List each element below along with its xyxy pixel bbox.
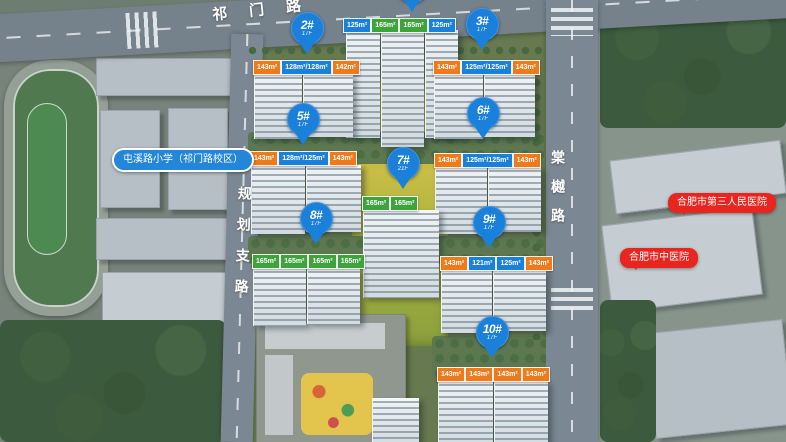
unit-area-tag: 125m²/125m² [461, 60, 511, 75]
building-floors: 17F [311, 221, 321, 228]
unit-tags-building-8: 165m² 165m² 165m² 165m² [252, 254, 365, 269]
trees [0, 320, 226, 442]
pin-pointer-icon [308, 232, 324, 252]
building-number: 6# [477, 104, 489, 116]
unit-area-tag: 143m² [440, 256, 468, 271]
pin-pointer-icon [481, 236, 497, 256]
unit-area-tag: 143m² [250, 151, 278, 166]
unit-area-tag: 165m² [390, 196, 418, 211]
lane-marking [571, 0, 573, 442]
residential-tower [363, 210, 439, 298]
residential-tower [372, 398, 419, 442]
building-floors: 21F [398, 166, 408, 173]
building-number: 9# [483, 213, 495, 225]
pin-pointer-icon [484, 346, 500, 366]
crosswalk [551, 8, 593, 36]
unit-area-tag: 165m² [252, 254, 280, 269]
building-floors: 17F [487, 335, 497, 342]
unit-tags-building-2: 143m² 128m²/128m² 142m² [253, 60, 360, 75]
building-pin-5: 5# 17F [285, 103, 321, 153]
building-floors: 17F [477, 27, 487, 34]
building-pin-2: 2# 17F [289, 12, 325, 62]
pin-pointer-icon [475, 127, 491, 147]
unit-area-tag: 143m² [253, 60, 281, 75]
residential-tower [253, 268, 306, 326]
pin-head: 5# 17F [287, 103, 320, 136]
hospital-label-third-peoples: 合肥市第三人民医院 [668, 193, 776, 213]
unit-area-tag: 143m² [437, 367, 465, 382]
unit-area-tag: 165m² [280, 254, 308, 269]
stadium-track [4, 60, 108, 316]
unit-tags-building-1: 125m² 165m² 165m² 125m² [343, 18, 456, 33]
pin-pointer-icon [295, 133, 311, 153]
unit-tags-building-7: 165m² 165m² [362, 196, 418, 211]
building-floors: 17F [484, 225, 494, 232]
unit-area-tag: 143m² [525, 256, 553, 271]
building-number: 5# [297, 110, 309, 122]
residential-tower [494, 381, 548, 442]
school-building [96, 218, 230, 260]
kindergarten-wing [265, 355, 293, 435]
building-pin-8: 8# 17F [298, 202, 334, 252]
unit-area-tag: 125m² [343, 18, 371, 33]
pin-head: 6# 17F [467, 97, 500, 130]
road-name-tangyue: 棠樾路 [548, 150, 568, 237]
trees [600, 300, 656, 442]
unit-area-tag: 143m² [512, 60, 540, 75]
residential-tower [251, 165, 305, 234]
unit-area-tag: 142m² [332, 60, 360, 75]
unit-tags-building-6: 143m² 125m²/125m² 143m² [434, 153, 541, 168]
building-pin-6: 6# 17F [465, 97, 501, 147]
pin-pointer-icon [404, 0, 420, 20]
building-number: 2# [301, 19, 313, 31]
pin-head: 10# 17F [476, 316, 509, 349]
unit-area-tag: 143m² [513, 153, 541, 168]
unit-area-tag: 143m² [433, 60, 461, 75]
hospital-building [645, 319, 786, 439]
unit-area-tag: 165m² [399, 18, 427, 33]
unit-area-tag: 125m² [428, 18, 456, 33]
building-number: 8# [310, 209, 322, 221]
building-number: 3# [476, 15, 488, 27]
unit-tags-building-5: 143m² 128m²/125m² 143m² [250, 151, 357, 166]
pin-pointer-icon [395, 177, 411, 197]
building-floors: 17F [478, 116, 488, 123]
residential-tower [438, 381, 493, 442]
building-pin-7: 7# 21F [385, 147, 421, 197]
pin-head: 9# 17F [473, 206, 506, 239]
unit-area-tag: 165m² [371, 18, 399, 33]
crosswalk [551, 288, 593, 314]
unit-area-tag: 143m² [465, 367, 493, 382]
unit-area-tag: 143m² [493, 367, 521, 382]
school-building [96, 58, 234, 96]
building-pin-3: 3# 17F [464, 8, 500, 58]
pin-head: 2# 17F [291, 12, 324, 45]
kindergarten-playground [301, 373, 373, 435]
pin-head: 3# 17F [466, 8, 499, 41]
unit-tags-building-3: 143m² 125m²/125m² 143m² [433, 60, 540, 75]
building-number: 7# [397, 154, 409, 166]
school-label: 屯溪路小学（祁门路校区） [112, 148, 254, 172]
unit-area-tag: 143m² [434, 153, 462, 168]
unit-area-tag: 143m² [329, 151, 357, 166]
pin-head: 7# 21F [387, 147, 420, 180]
pin-pointer-icon [474, 38, 490, 58]
unit-tags-building-9: 143m² 121m² 125m² 143m² [440, 256, 553, 271]
building-floors: 17F [298, 122, 308, 129]
stadium-field [27, 103, 67, 255]
pin-pointer-icon [299, 42, 315, 62]
residential-tower [307, 268, 360, 324]
unit-area-tag: 165m² [337, 254, 365, 269]
unit-area-tag: 128m²/125m² [278, 151, 328, 166]
unit-area-tag: 143m² [522, 367, 550, 382]
building-pin-9: 9# 17F [471, 206, 507, 256]
hospital-label-tcm: 合肥市中医院 [620, 248, 698, 268]
building-pin-1 [394, 0, 430, 20]
unit-area-tag: 121m² [468, 256, 496, 271]
building-number: 10# [483, 323, 502, 335]
aerial-masterplan: 125m² 165m² 165m² 125m² 143m² 128m²/128m… [0, 0, 786, 442]
unit-area-tag: 125m²/125m² [462, 153, 512, 168]
building-pin-10: 10# 17F [474, 316, 510, 366]
unit-area-tag: 165m² [308, 254, 336, 269]
unit-tags-building-10: 143m² 143m² 143m² 143m² [437, 367, 550, 382]
pin-head: 8# 17F [300, 202, 333, 235]
kindergarten-roof [265, 323, 385, 349]
residential-tower [381, 26, 424, 147]
building-floors: 17F [302, 31, 312, 38]
unit-area-tag: 125m² [496, 256, 524, 271]
crosswalk [125, 11, 161, 49]
unit-area-tag: 165m² [362, 196, 390, 211]
unit-area-tag: 128m²/128m² [281, 60, 331, 75]
school-building [102, 272, 226, 326]
